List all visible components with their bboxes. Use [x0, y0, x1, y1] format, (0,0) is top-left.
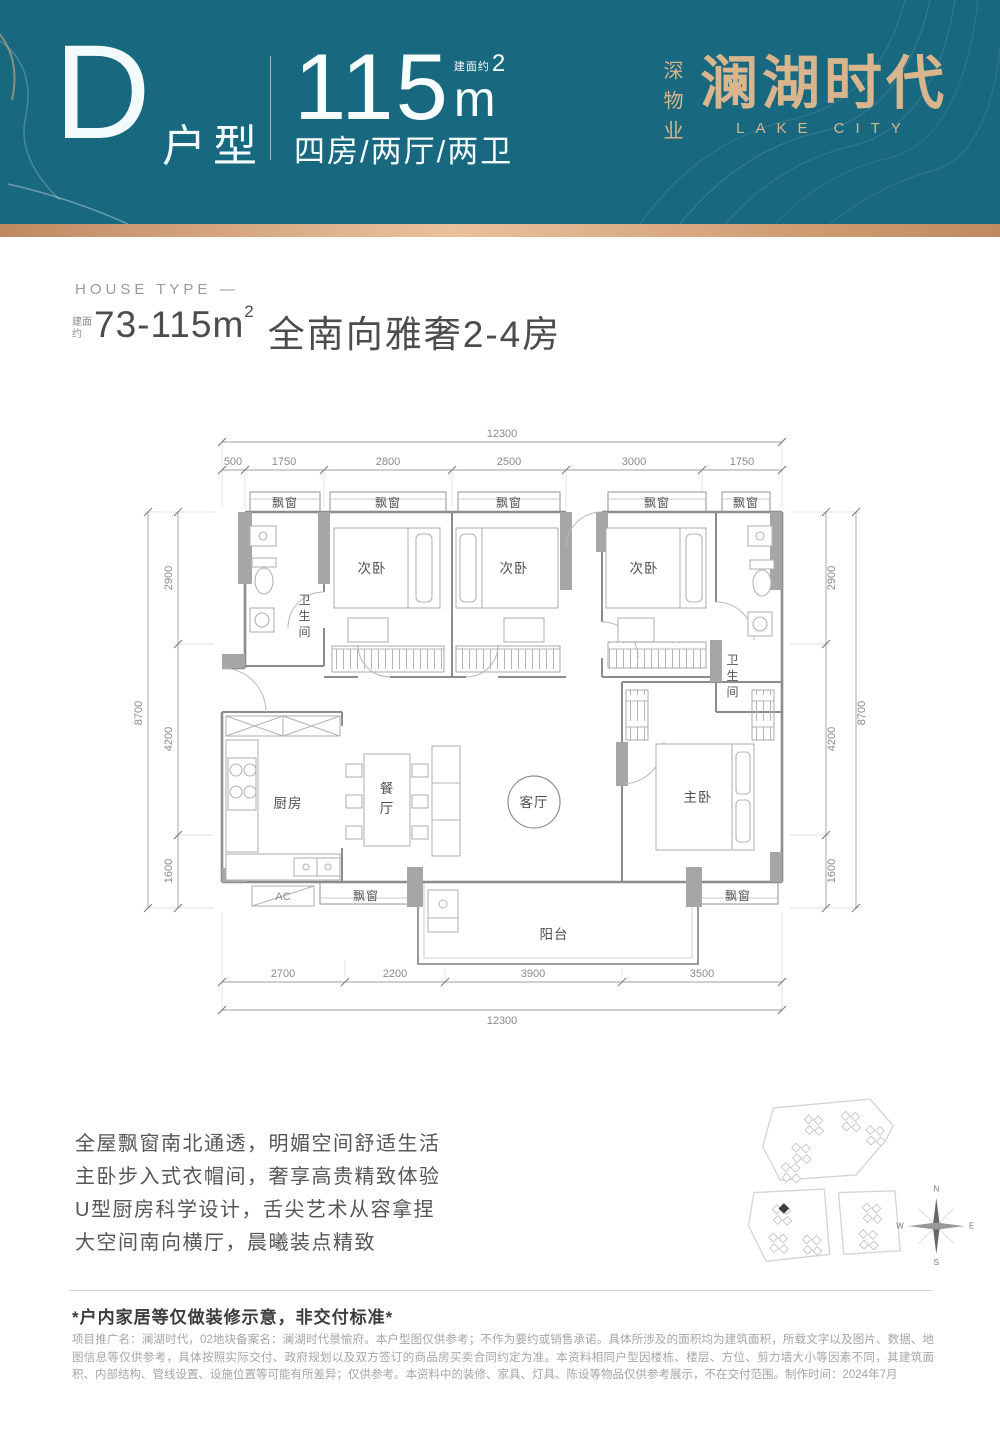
bay-window-label: 飘窗 [375, 496, 401, 510]
kitchen-label: 厨房 [274, 796, 303, 811]
header-banner: D 户型 115 建面约 2 m 四房/两厅/两卫 深物业 澜湖时代 LAKE … [0, 0, 1000, 224]
copper-stripe [0, 224, 1000, 237]
bathroom-label: 间 [726, 685, 739, 699]
bedroom-label: 次卧 [630, 561, 659, 576]
bathroom-label: 生 [298, 609, 311, 623]
feature-line: 主卧步入式衣帽间，奢享高贵精致体验 [75, 1161, 441, 1194]
dim-top-seg: 1750 [272, 456, 296, 468]
site-plan-map: N E S W [738, 1082, 976, 1282]
dim-right-seg: 1600 [826, 859, 838, 883]
dim-right-seg: 2900 [826, 566, 838, 590]
section-eyebrow: HOUSE TYPE — [75, 281, 239, 298]
dim-top-seg: 2500 [497, 456, 521, 468]
bay-window-label: 飘窗 [496, 496, 522, 510]
brand-name-cn: 澜湖时代 [700, 52, 948, 116]
pillow [736, 800, 750, 842]
decoration-notice: *户内家居等仅做装修示意，非交付标准* [72, 1303, 393, 1328]
bay-window-label: 飘窗 [725, 889, 751, 903]
headline-title: 全南向雅奢2-4房 [268, 304, 561, 358]
compass-w: W [896, 1222, 904, 1231]
dim-left-seg: 4200 [163, 727, 175, 751]
area-value: 115 [294, 44, 450, 130]
bathroom-label: 卫 [298, 593, 311, 607]
desk [618, 618, 654, 642]
furniture [226, 526, 774, 906]
brand-name-en: LAKE CITY [700, 120, 948, 137]
bay-window-label: 飘窗 [644, 496, 670, 510]
master-label: 主卧 [684, 790, 713, 805]
dim-top-seg: 1750 [730, 456, 754, 468]
compass-s: S [934, 1258, 939, 1267]
bedroom-label: 次卧 [358, 561, 387, 576]
desk [504, 618, 544, 642]
area-block: 115 建面约 2 m [294, 44, 505, 130]
brand-vertical-text: 深物业 [657, 60, 686, 150]
pillow [686, 534, 702, 602]
header-divider [270, 56, 271, 160]
dining-label: 餐 [380, 781, 395, 796]
floor-plan: 12300 500 1750 2800 2500 3000 1750 2700 … [102, 412, 902, 1072]
dim-left-seg: 1600 [163, 859, 175, 883]
feature-line: U型厨房科学设计，舌尖艺术从容拿捏 [75, 1194, 441, 1227]
bathroom-label: 间 [298, 625, 311, 639]
toilet-tank [750, 560, 774, 569]
bay-window-label: 飘窗 [272, 496, 298, 510]
living-label: 客厅 [520, 794, 549, 810]
washer [250, 608, 274, 632]
dim-top-total: 12300 [487, 428, 518, 440]
legal-disclaimer: 项目推广名：澜湖时代，02地块备案名：澜湖时代景愉府。本户型图仅供参考；不作为要… [72, 1332, 934, 1385]
brand-logo: 深物业 澜湖时代 LAKE CITY [657, 52, 948, 150]
toilet-tank [252, 558, 276, 567]
feature-line: 全屋飘窗南北通透，明媚空间舒适生活 [75, 1128, 441, 1161]
area-range-sup: 2 [244, 302, 253, 322]
bath-sink [748, 526, 772, 546]
footer-divider [70, 1290, 932, 1291]
bay-window-label: 飘窗 [733, 496, 759, 510]
dim-right-total: 8700 [856, 701, 868, 725]
dim-right-seg: 4200 [826, 727, 838, 751]
pillow [736, 752, 750, 794]
dining-label: 厅 [380, 801, 395, 816]
feature-line: 大空间南向横厅，晨曦装点精致 [75, 1227, 441, 1260]
dim-bottom-total: 12300 [487, 1015, 518, 1027]
toilet [753, 570, 771, 596]
house-type-letter: D [54, 26, 151, 160]
dim-bottom-seg: 2700 [271, 968, 295, 980]
area-unit: m [454, 78, 505, 121]
dim-bottom-seg: 2200 [383, 968, 407, 980]
pillow [416, 534, 432, 602]
dim-bottom-seg: 3900 [521, 968, 545, 980]
dim-top-seg: 500 [224, 456, 242, 468]
balcony [418, 882, 698, 964]
feature-list: 全屋飘窗南北通透，明媚空间舒适生活 主卧步入式衣帽间，奢享高贵精致体验 U型厨房… [75, 1128, 441, 1260]
compass: N E S W [896, 1185, 974, 1267]
room-configuration: 四房/两厅/两卫 [294, 126, 513, 171]
pillow [460, 534, 476, 602]
area-range: 73-115m [94, 304, 244, 346]
house-type-label: 户型 [162, 110, 264, 174]
washer [748, 612, 772, 636]
dim-left-total: 8700 [133, 701, 145, 725]
bedroom-label: 次卧 [500, 561, 529, 576]
wardrobes [332, 642, 774, 740]
sofa [432, 746, 460, 856]
area-note-line1: 建面 [72, 317, 92, 329]
toilet [255, 568, 273, 594]
bathroom-label: 生 [726, 669, 739, 683]
dim-bottom-seg: 3500 [690, 968, 714, 980]
compass-n: N [933, 1185, 939, 1194]
balcony-sink [428, 890, 458, 932]
page-title: 建面 约 73-115m 2 全南向雅奢2-4房 [72, 304, 561, 358]
dim-left-seg: 2900 [163, 566, 175, 590]
bay-windows-bottom [320, 882, 778, 904]
bay-window-label: 飘窗 [353, 889, 379, 903]
compass-e: E [969, 1222, 974, 1231]
dim-top-seg: 3000 [622, 456, 646, 468]
ac-label: AC [275, 891, 290, 903]
dim-top-seg: 2800 [376, 456, 400, 468]
desk [348, 618, 388, 642]
floor-plan-svg: 12300 500 1750 2800 2500 3000 1750 2700 … [102, 412, 902, 1072]
bath-sink [250, 526, 276, 546]
area-note-line2: 约 [72, 329, 92, 341]
bathroom-label: 卫 [726, 653, 739, 667]
balcony-label: 阳台 [540, 927, 569, 942]
dining-table [364, 754, 410, 846]
